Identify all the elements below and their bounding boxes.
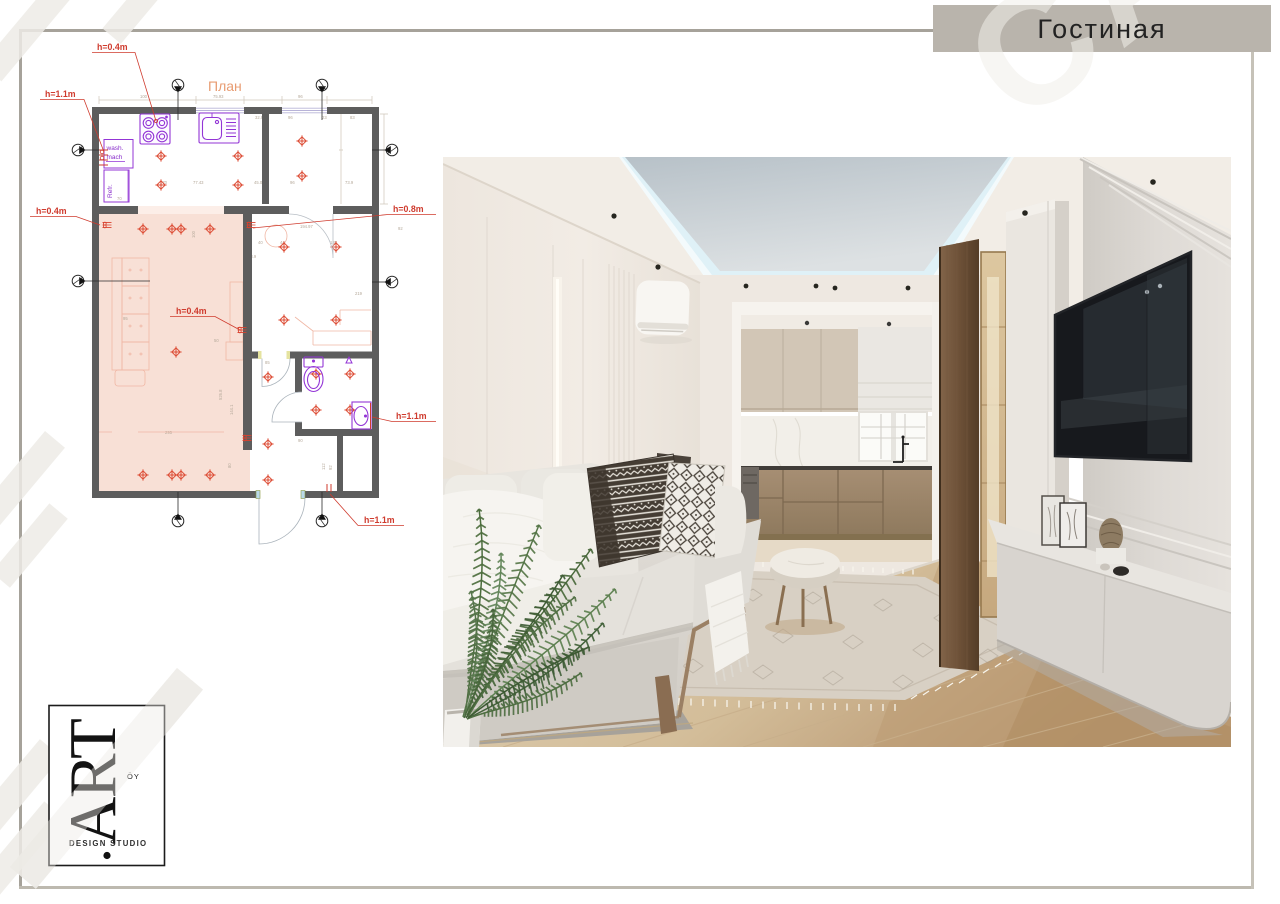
svg-text:75.93: 75.93 <box>213 94 224 99</box>
svg-text:h=0.4m: h=0.4m <box>97 42 128 52</box>
svg-text:83: 83 <box>350 115 355 120</box>
svg-text:70: 70 <box>117 196 122 201</box>
svg-text:h=0.8m: h=0.8m <box>393 204 424 214</box>
svg-text:92: 92 <box>328 465 333 470</box>
svg-text:112: 112 <box>321 463 326 470</box>
svg-text:План: План <box>208 78 242 94</box>
svg-text:h=1.1m: h=1.1m <box>396 411 427 421</box>
svg-text:73.9: 73.9 <box>345 180 354 185</box>
svg-text:85: 85 <box>265 360 270 365</box>
svg-text:90: 90 <box>298 438 303 443</box>
svg-text:194.97: 194.97 <box>300 224 313 229</box>
svg-text:h=0.4m: h=0.4m <box>36 206 67 216</box>
svg-text:Refr.: Refr. <box>107 184 114 198</box>
svg-text:144.1: 144.1 <box>229 404 234 415</box>
svg-text:80: 80 <box>227 463 232 468</box>
svg-text:219: 219 <box>355 291 363 296</box>
svg-text:h=0.4m: h=0.4m <box>176 306 207 316</box>
svg-text:295: 295 <box>165 430 173 435</box>
svg-text:mach: mach <box>107 154 123 161</box>
svg-text:100: 100 <box>191 230 196 238</box>
svg-text:77.43: 77.43 <box>193 180 204 185</box>
svg-text:50: 50 <box>214 338 219 343</box>
svg-text:96: 96 <box>288 115 293 120</box>
svg-text:96: 96 <box>298 94 303 99</box>
svg-text:h=1.1m: h=1.1m <box>45 89 76 99</box>
svg-text:h=1.1m: h=1.1m <box>364 515 395 525</box>
svg-text:wash.: wash. <box>106 145 124 152</box>
svg-text:96: 96 <box>290 180 295 185</box>
svg-text:95: 95 <box>123 316 128 321</box>
svg-text:23: 23 <box>322 115 327 120</box>
svg-text:40: 40 <box>258 240 263 245</box>
svg-text:526.8: 526.8 <box>218 389 223 400</box>
svg-text:100: 100 <box>140 94 148 99</box>
svg-text:92: 92 <box>398 226 403 231</box>
